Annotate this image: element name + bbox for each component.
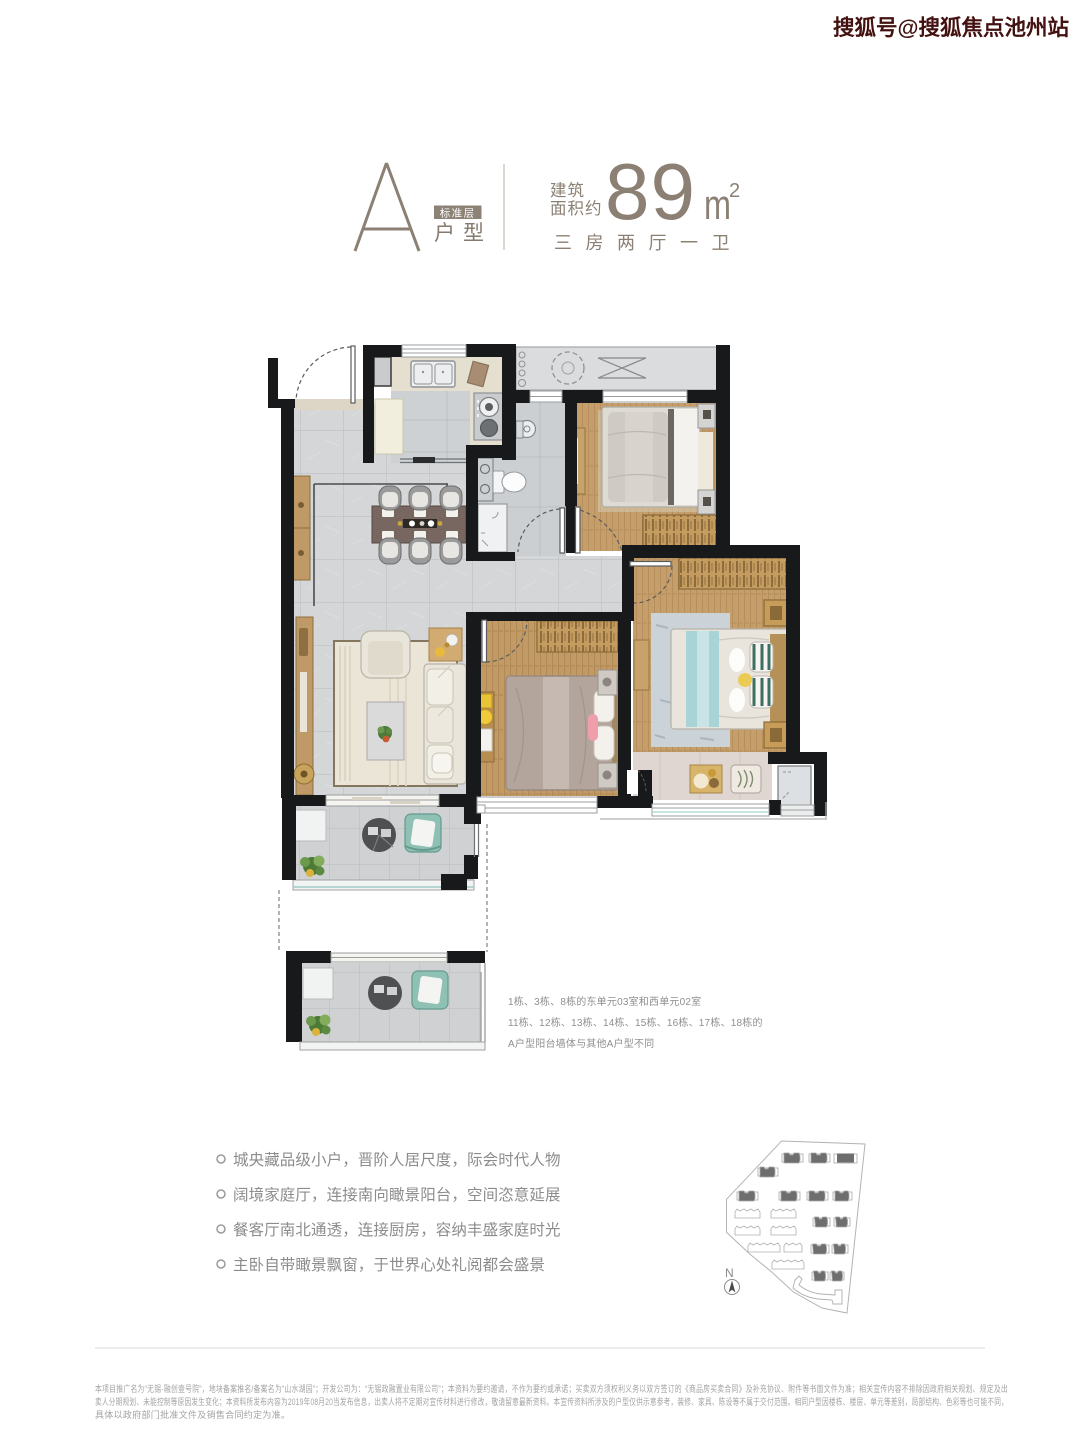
svg-text:主卧自带瞰景飘窗，于世界心处礼阅都会盛景: 主卧自带瞰景飘窗，于世界心处礼阅都会盛景 <box>233 1256 545 1274</box>
svg-text:建筑: 建筑 <box>550 181 585 200</box>
svg-text:城央藏品级小户，晋阶人居尺度，际会时代人物: 城央藏品级小户，晋阶人居尺度，际会时代人物 <box>233 1151 561 1169</box>
svg-text:卖人分期规划、未能控制等原因发生变化；本资料所发布内容为20: 卖人分期规划、未能控制等原因发生变化；本资料所发布内容为2019年08月20当发… <box>95 1396 1008 1407</box>
svg-text:面积约: 面积约 <box>550 199 603 218</box>
svg-text:三房两厅一卫: 三房两厅一卫 <box>554 233 743 253</box>
svg-text:1栋、3栋、8栋的东单元03室和西单元02室: 1栋、3栋、8栋的东单元03室和西单元02室 <box>508 995 701 1008</box>
svg-text:标准层: 标准层 <box>440 207 476 219</box>
svg-text:2: 2 <box>729 180 740 202</box>
svg-text:11栋、12栋、13栋、14栋、15栋、16栋、17栋、18: 11栋、12栋、13栋、14栋、15栋、16栋、17栋、18栋的 <box>508 1016 763 1029</box>
svg-text:阔境家庭厅，连接南向瞰景阳台，空间恣意延展: 阔境家庭厅，连接南向瞰景阳台，空间恣意延展 <box>233 1185 561 1204</box>
svg-text:餐客厅南北通透，连接厨房，容纳丰盛家庭时光: 餐客厅南北通透，连接厨房，容纳丰盛家庭时光 <box>233 1221 561 1239</box>
svg-text:N: N <box>725 1266 734 1280</box>
svg-text:89: 89 <box>605 147 696 236</box>
svg-text:A户型阳台墙体与其他A户型不同: A户型阳台墙体与其他A户型不同 <box>508 1037 654 1050</box>
svg-text:搜狐号@搜狐焦点池州站: 搜狐号@搜狐焦点池州站 <box>833 15 1069 40</box>
svg-text:具体以政府部门批准文件及销售合同约定为准。: 具体以政府部门批准文件及销售合同约定为准。 <box>95 1409 290 1420</box>
svg-text:户型: 户型 <box>434 222 492 245</box>
svg-text:本项目推广名为“无锡·融创壹号院”，地块备案推名/备案名为“: 本项目推广名为“无锡·融创壹号院”，地块备案推名/备案名为“山水湖园”；开发公司… <box>95 1383 1008 1394</box>
svg-text:m: m <box>704 181 731 228</box>
